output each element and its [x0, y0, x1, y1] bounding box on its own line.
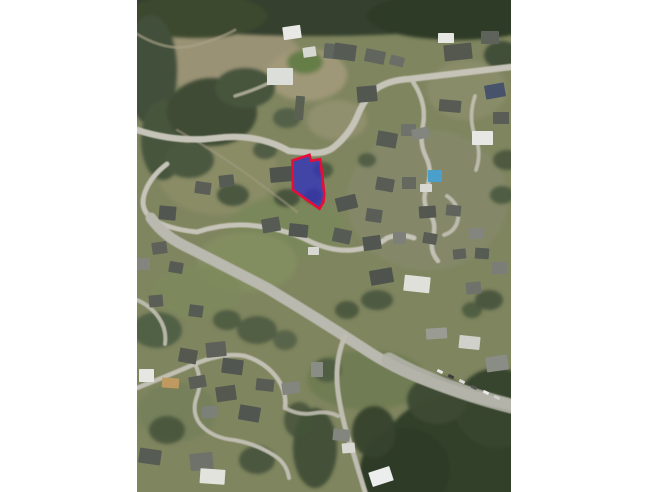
building: [158, 205, 176, 220]
building: [443, 43, 473, 62]
building: [162, 377, 180, 388]
building: [200, 468, 226, 485]
building: [492, 262, 507, 274]
building: [342, 442, 356, 453]
building: [311, 362, 323, 377]
building: [308, 247, 319, 255]
building: [466, 281, 482, 294]
building: [356, 85, 377, 103]
building: [402, 177, 416, 189]
building: [332, 428, 350, 442]
building: [445, 204, 461, 217]
building: [302, 46, 316, 58]
building: [472, 131, 493, 145]
building: [362, 235, 382, 251]
listing-photo-stage: [0, 0, 648, 492]
building: [138, 448, 162, 466]
building: [255, 378, 274, 392]
building: [475, 248, 490, 260]
building: [365, 208, 383, 223]
satellite-map-image: [137, 0, 511, 492]
building: [438, 33, 454, 43]
building: [419, 205, 437, 218]
building: [426, 327, 448, 339]
building: [282, 25, 302, 40]
building: [194, 181, 212, 195]
building: [188, 304, 204, 318]
building: [139, 369, 154, 382]
building: [493, 112, 509, 124]
building: [420, 184, 432, 192]
building: [149, 294, 164, 307]
building: [137, 258, 150, 270]
building: [458, 335, 480, 350]
building: [269, 166, 292, 183]
building: [333, 43, 357, 62]
satellite-map-svg: [137, 0, 511, 492]
building: [453, 248, 467, 259]
building: [151, 241, 168, 255]
building: [288, 223, 308, 238]
building: [481, 31, 499, 44]
building: [469, 228, 483, 239]
building: [403, 275, 431, 294]
building: [393, 232, 406, 244]
building: [267, 68, 293, 85]
building: [281, 381, 300, 395]
building: [205, 341, 226, 358]
building: [218, 174, 234, 188]
building: [428, 170, 442, 182]
building: [439, 99, 462, 113]
building: [215, 385, 237, 403]
building: [485, 355, 509, 373]
building: [202, 405, 218, 418]
building: [221, 358, 244, 376]
